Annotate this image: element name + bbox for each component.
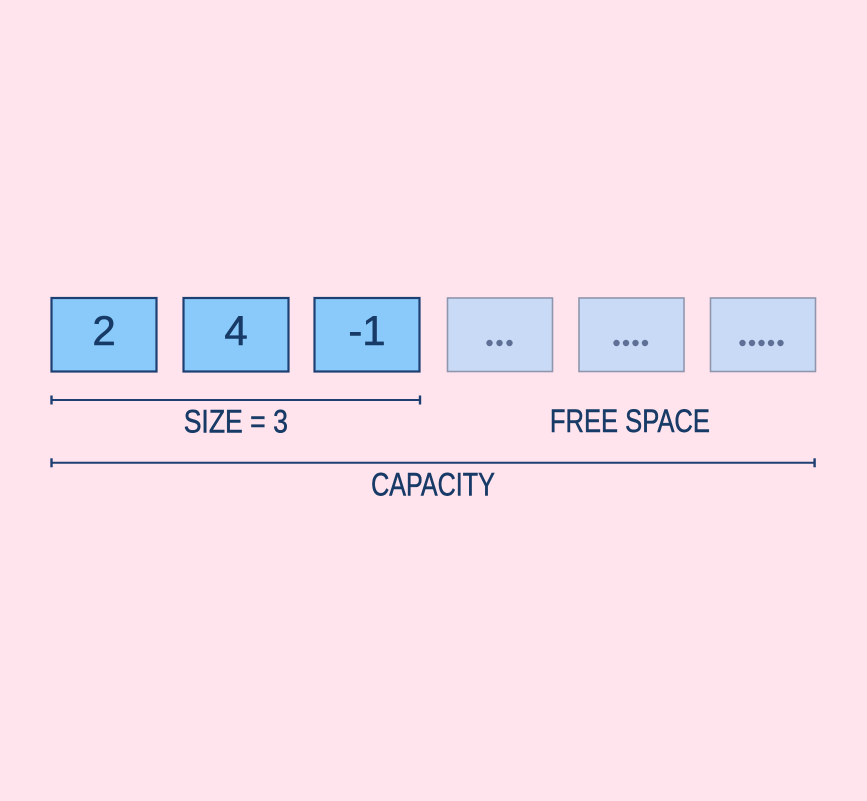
svg-text:FREE SPACE: FREE SPACE <box>550 403 710 439</box>
svg-text:2: 2 <box>92 307 115 354</box>
svg-text:SIZE = 3: SIZE = 3 <box>184 403 288 439</box>
svg-text:4: 4 <box>224 307 247 354</box>
svg-text:-1: -1 <box>348 307 385 354</box>
svg-text:CAPACITY: CAPACITY <box>371 467 495 503</box>
